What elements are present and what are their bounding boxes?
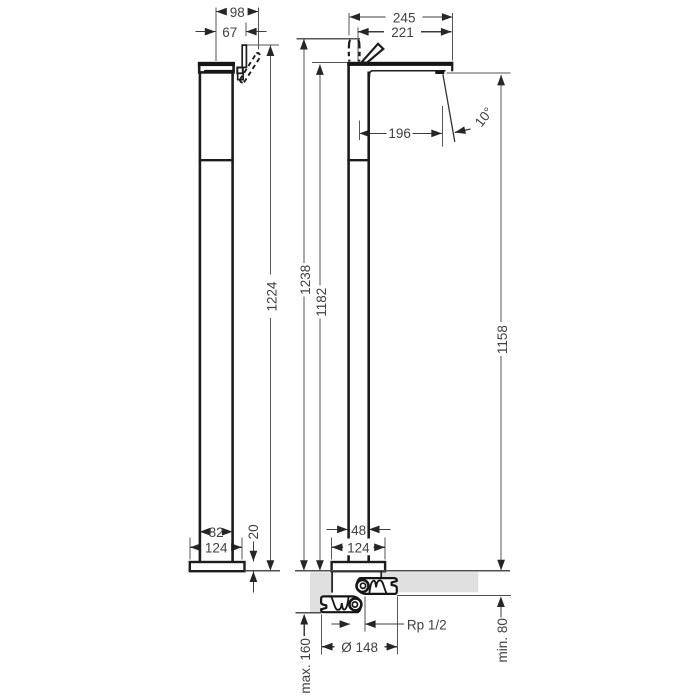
svg-text:max. 160: max. 160 [298,638,313,694]
svg-text:98: 98 [230,5,245,20]
svg-text:min. 80: min. 80 [495,618,510,662]
svg-text:48: 48 [351,523,366,538]
svg-text:1238: 1238 [298,265,313,295]
svg-text:Rp 1/2: Rp 1/2 [407,618,447,633]
svg-text:82: 82 [209,525,224,540]
svg-text:124: 124 [205,540,228,555]
svg-text:124: 124 [347,540,370,555]
svg-text:1182: 1182 [314,288,329,317]
svg-text:67: 67 [222,25,237,40]
svg-text:1224: 1224 [265,281,280,312]
svg-text:1158: 1158 [495,325,510,354]
svg-text:20: 20 [246,524,261,539]
svg-text:221: 221 [391,25,414,40]
svg-text:196: 196 [388,126,411,141]
svg-text:245: 245 [393,10,416,25]
svg-text:Ø 148: Ø 148 [341,640,378,655]
